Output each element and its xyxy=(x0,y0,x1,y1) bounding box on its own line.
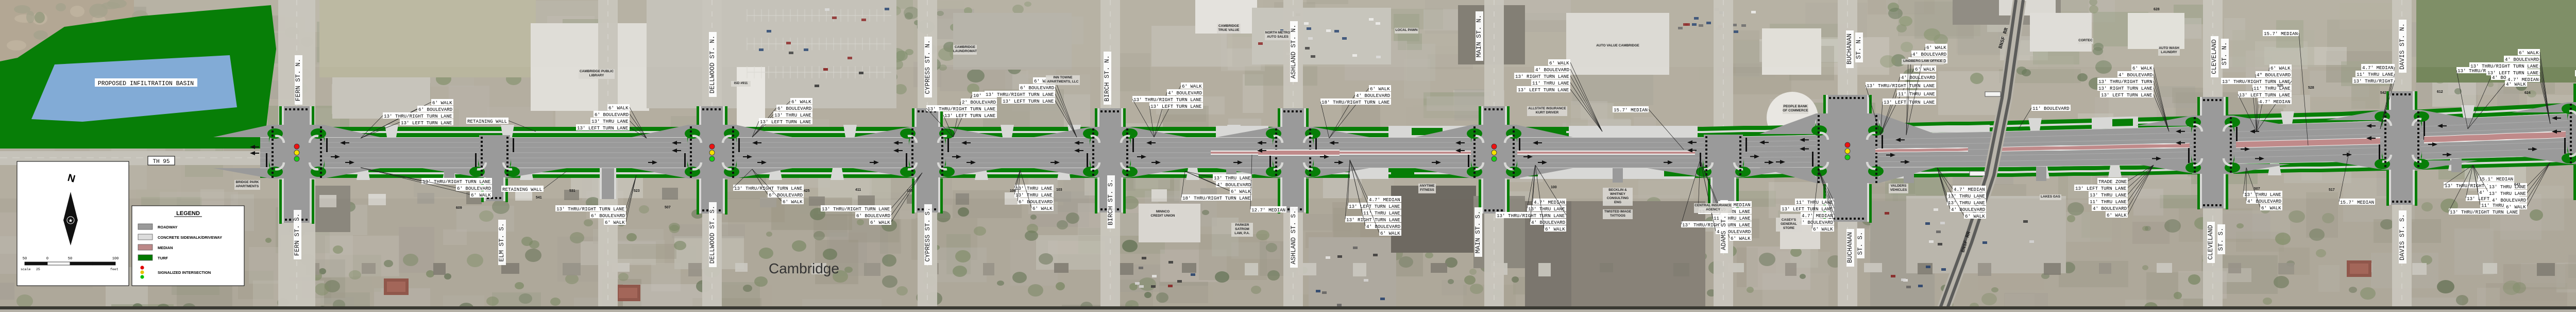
svg-text:11' THRU LANE: 11' THRU LANE xyxy=(2253,86,2291,91)
svg-text:GENERAL: GENERAL xyxy=(1781,222,1797,226)
svg-text:6' BOULEVARD: 6' BOULEVARD xyxy=(856,213,891,219)
svg-text:CLEVELAND: CLEVELAND xyxy=(2207,225,2214,260)
svg-text:13' THRU LANE: 13' THRU LANE xyxy=(1015,186,1053,191)
svg-text:STORE: STORE xyxy=(1783,226,1795,230)
svg-text:13' THRU/RIGHT TURN LANE: 13' THRU/RIGHT TURN LANE xyxy=(1133,97,1202,103)
svg-text:6' WALK: 6' WALK xyxy=(1032,206,1053,211)
svg-text:ASHLAND ST. S.: ASHLAND ST. S. xyxy=(1290,210,1297,264)
svg-text:13' THRU/RIGHT TURN: 13' THRU/RIGHT TURN xyxy=(2098,79,2153,85)
svg-text:PROPOSED INFILTRATION BASIN: PROPOSED INFILTRATION BASIN xyxy=(98,80,194,87)
svg-text:BUCHANAN: BUCHANAN xyxy=(1846,232,1854,263)
svg-text:13' LEFT TURN LANE: 13' LEFT TURN LANE xyxy=(760,119,811,125)
svg-text:INN TOWNE: INN TOWNE xyxy=(1053,76,1073,79)
svg-text:6' WALK: 6' WALK xyxy=(432,100,452,106)
svg-text:6' WALK: 6' WALK xyxy=(2132,65,2153,71)
svg-text:13' THRU LANE: 13' THRU LANE xyxy=(2489,191,2526,196)
svg-text:542: 542 xyxy=(2380,91,2386,95)
svg-text:6' WALK: 6' WALK xyxy=(1915,67,1935,72)
svg-text:6' WALK: 6' WALK xyxy=(2270,65,2291,71)
svg-text:LAKES GAS: LAKES GAS xyxy=(2041,195,2061,199)
svg-text:AUTO WASH: AUTO WASH xyxy=(2159,46,2179,50)
svg-text:ASHLAND ST. N.: ASHLAND ST. N. xyxy=(1290,24,1297,78)
svg-text:13' LEFT TURN LANE: 13' LEFT TURN LANE xyxy=(1150,104,1202,109)
svg-text:ANYTIME: ANYTIME xyxy=(1419,184,1435,188)
svg-text:13' LEFT TURN LANE: 13' LEFT TURN LANE xyxy=(1884,100,1935,105)
svg-text:4' BOULEVARD: 4' BOULEVARD xyxy=(1799,220,1834,225)
svg-text:CONCRETE SIDEWALK/DRIVEWAY: CONCRETE SIDEWALK/DRIVEWAY xyxy=(158,235,222,240)
svg-text:15.7' MEDIAN: 15.7' MEDIAN xyxy=(2264,31,2298,37)
svg-text:13' THRU/RIGHT TURN LANE: 13' THRU/RIGHT TURN LANE xyxy=(927,106,996,112)
svg-text:AUTO SALES: AUTO SALES xyxy=(1267,35,1289,39)
svg-text:11' THRU LANE: 11' THRU LANE xyxy=(2090,199,2127,205)
svg-text:CYPRESS ST. N.: CYPRESS ST. N. xyxy=(924,40,931,94)
svg-text:528: 528 xyxy=(2308,86,2314,90)
svg-text:APARTMENTS, LLC: APARTMENTS, LLC xyxy=(1047,80,1079,84)
svg-text:13' THRU/RIGHT TURN LANE: 13' THRU/RIGHT TURN LANE xyxy=(422,179,491,185)
svg-text:BIRCH ST. S.: BIRCH ST. S. xyxy=(1107,179,1114,225)
svg-text:13' THRU LANE: 13' THRU LANE xyxy=(1214,175,1251,181)
svg-text:LAW, P.A.: LAW, P.A. xyxy=(1234,232,1250,235)
svg-text:13' THRU LANE: 13' THRU LANE xyxy=(2489,184,2526,190)
svg-text:BIRCH ST. N.: BIRCH ST. N. xyxy=(1104,55,1111,102)
svg-text:13' LEFT TURN LANE: 13' LEFT TURN LANE xyxy=(401,120,452,126)
svg-text:6' BOULEVARD: 6' BOULEVARD xyxy=(1019,199,1053,205)
svg-text:6' WALK: 6' WALK xyxy=(783,199,803,205)
svg-text:11' THRU LANE: 11' THRU LANE xyxy=(1532,80,1569,86)
svg-text:SATROM: SATROM xyxy=(1235,227,1249,231)
svg-text:13' THRU/RIGHT TURN LANE: 13' THRU/RIGHT TURN LANE xyxy=(556,206,625,212)
svg-text:ISD #911: ISD #911 xyxy=(734,81,748,85)
svg-text:105: 105 xyxy=(907,189,913,193)
svg-text:13' THRU/RIGHT: 13' THRU/RIGHT xyxy=(2353,78,2394,84)
svg-text:OF COMMERCE: OF COMMERCE xyxy=(1783,109,1808,112)
svg-text:25: 25 xyxy=(36,268,40,271)
svg-text:0: 0 xyxy=(46,257,48,261)
svg-text:LIBRARY: LIBRARY xyxy=(589,74,604,77)
svg-text:6' WALK: 6' WALK xyxy=(1549,60,1569,66)
svg-text:4' BOULEVARD: 4' BOULEVARD xyxy=(2119,72,2153,78)
svg-text:100: 100 xyxy=(112,257,119,261)
svg-text:411: 411 xyxy=(855,188,861,192)
svg-text:13' THRU/RIGHT TURN LANE: 13' THRU/RIGHT TURN LANE xyxy=(986,92,1054,97)
svg-text:13' THRU LANE: 13' THRU LANE xyxy=(591,119,629,124)
svg-text:13' THRU LANE: 13' THRU LANE xyxy=(774,112,811,118)
svg-text:LOCAL PAWN: LOCAL PAWN xyxy=(1395,28,1417,32)
svg-text:feet: feet xyxy=(110,268,118,271)
svg-text:ELM ST. S.: ELM ST. S. xyxy=(498,223,505,261)
svg-text:4' BOULEVARD: 4' BOULEVARD xyxy=(1531,220,1566,225)
svg-text:13' THRU/RIGHT TURN LANE: 13' THRU/RIGHT TURN LANE xyxy=(2450,209,2518,215)
svg-text:6' WALK: 6' WALK xyxy=(1370,86,1390,92)
svg-text:TRADE ZONE: TRADE ZONE xyxy=(2098,179,2127,185)
svg-text:13' THRU LANE: 13' THRU LANE xyxy=(2090,192,2127,198)
svg-text:13' THRU LANE: 13' THRU LANE xyxy=(1528,206,1565,212)
svg-text:DAVIS ST. N.: DAVIS ST. N. xyxy=(2399,23,2406,70)
svg-text:CENTRAL INSURANCE: CENTRAL INSURANCE xyxy=(1694,204,1732,207)
svg-text:CASEY'S: CASEY'S xyxy=(1782,218,1797,222)
svg-text:100: 100 xyxy=(1551,186,1557,189)
svg-text:TH 95: TH 95 xyxy=(152,159,170,165)
svg-text:13' THRU/RIGHT TURN LANE: 13' THRU/RIGHT TURN LANE xyxy=(2470,63,2539,69)
svg-text:4.7' MEDIAN: 4.7' MEDIAN xyxy=(2362,65,2394,71)
svg-text:AUTO VALUE CAMBRIDGE: AUTO VALUE CAMBRIDGE xyxy=(1596,44,1639,47)
svg-text:13' LEFT TURN LANE: 13' LEFT TURN LANE xyxy=(2075,186,2127,191)
svg-text:6' WALK: 6' WALK xyxy=(791,99,811,105)
svg-text:6' BOULEVARD: 6' BOULEVARD xyxy=(457,186,492,191)
svg-text:531: 531 xyxy=(569,189,575,193)
svg-text:TWISTED IMAGE: TWISTED IMAGE xyxy=(1604,210,1632,214)
svg-text:13' LEFT TURN LANE: 13' LEFT TURN LANE xyxy=(2101,92,2153,98)
svg-text:RETAINING WALL: RETAINING WALL xyxy=(502,187,542,192)
svg-text:6' WALK: 6' WALK xyxy=(1231,189,1251,194)
svg-text:CLEVELAND: CLEVELAND xyxy=(2211,39,2218,74)
svg-text:SIGNALIZED INTERSECTION: SIGNALIZED INTERSECTION xyxy=(158,270,211,275)
svg-text:520: 520 xyxy=(2277,84,2283,88)
svg-text:517: 517 xyxy=(2329,188,2335,192)
svg-text:6' WALK: 6' WALK xyxy=(1380,231,1400,236)
svg-text:6' WALK: 6' WALK xyxy=(1731,236,1751,241)
svg-text:4' BOULEVARD: 4' BOULEVARD xyxy=(2505,57,2539,62)
svg-text:507: 507 xyxy=(665,206,671,209)
svg-text:106: 106 xyxy=(1010,189,1016,193)
svg-text:FERN ST. N.: FERN ST. N. xyxy=(295,59,302,102)
svg-text:ROADWAY: ROADWAY xyxy=(158,225,177,229)
svg-text:18' THRU/RIGHT TURN LANE: 18' THRU/RIGHT TURN LANE xyxy=(1182,195,1251,201)
svg-text:CAMBRIDGE: CAMBRIDGE xyxy=(955,45,976,49)
svg-text:6' WALK: 6' WALK xyxy=(1182,84,1202,89)
svg-text:4' BOULEVARD: 4' BOULEVARD xyxy=(2093,206,2127,211)
svg-text:CREDIT UNION: CREDIT UNION xyxy=(1151,214,1175,218)
svg-text:scale: scale xyxy=(21,268,31,271)
svg-text:MINNCO: MINNCO xyxy=(1156,210,1170,214)
svg-text:DELLWOOD ST. N.: DELLWOOD ST. N. xyxy=(709,36,716,94)
svg-text:609: 609 xyxy=(456,206,462,210)
svg-text:6' WALK: 6' WALK xyxy=(1965,214,1985,219)
svg-text:MAIN ST. N.: MAIN ST. N. xyxy=(1476,15,1483,58)
svg-text:CYPRESS ST. S.: CYPRESS ST. S. xyxy=(924,207,931,261)
svg-text:13' THRU/RIGHT TURN LANE: 13' THRU/RIGHT TURN LANE xyxy=(1682,222,1751,228)
svg-text:MEDIAN: MEDIAN xyxy=(158,245,173,250)
svg-text:BUCHANAN: BUCHANAN xyxy=(1846,34,1853,64)
svg-text:13' THRU LANE: 13' THRU LANE xyxy=(2244,192,2281,198)
svg-text:11' THRU LANE: 11' THRU LANE xyxy=(2357,72,2394,77)
svg-text:CORTEC: CORTEC xyxy=(2078,39,2093,42)
svg-text:FITNESS: FITNESS xyxy=(1420,188,1434,192)
svg-text:103: 103 xyxy=(1056,188,1062,192)
svg-text:6' BOULEVARD: 6' BOULEVARD xyxy=(591,213,625,219)
svg-text:TATTOOS: TATTOOS xyxy=(1610,214,1626,218)
svg-text:ST. N.: ST. N. xyxy=(2221,42,2228,65)
svg-text:6' BOULEVARD: 6' BOULEVARD xyxy=(595,112,629,118)
svg-text:4' BOULEVARD: 4' BOULEVARD xyxy=(1168,90,1202,96)
svg-text:13' THRU LANE: 13' THRU LANE xyxy=(1015,192,1053,198)
svg-text:13' THRU/RIGHT TURN LANE: 13' THRU/RIGHT TURN LANE xyxy=(384,113,452,119)
svg-text:ST. S.: ST. S. xyxy=(1857,232,1864,255)
svg-text:13' THRU LANE: 13' THRU LANE xyxy=(1948,200,1985,206)
svg-text:4' BOULEVARD: 4' BOULEVARD xyxy=(1912,52,1947,57)
svg-text:612: 612 xyxy=(2437,90,2443,94)
svg-text:BRIDGE PARK: BRIDGE PARK xyxy=(235,180,259,184)
svg-text:13' THRU/RIGHT TURN LANE: 13' THRU/RIGHT TURN LANE xyxy=(822,206,890,212)
svg-text:15.7' MEDIAN: 15.7' MEDIAN xyxy=(1614,107,1648,113)
svg-text:13' LEFT TURN LANE: 13' LEFT TURN LANE xyxy=(577,125,629,131)
svg-text:ENG: ENG xyxy=(1614,201,1621,204)
svg-text:4.7' MEDIAN: 4.7' MEDIAN xyxy=(2259,99,2291,105)
svg-text:15.1' MEDIAN: 15.1' MEDIAN xyxy=(2479,176,2513,182)
svg-text:KURT DRIVER: KURT DRIVER xyxy=(1536,111,1559,114)
svg-text:507: 507 xyxy=(2254,187,2260,191)
svg-text:VEHICLES: VEHICLES xyxy=(1890,188,1907,192)
svg-text:DAVIS ST. S.: DAVIS ST. S. xyxy=(2399,214,2406,260)
svg-text:AGENCY: AGENCY xyxy=(1706,208,1720,211)
svg-text:6' WALK: 6' WALK xyxy=(2261,205,2281,211)
svg-text:★: ★ xyxy=(69,218,73,224)
svg-text:13' RIGHT TURN LANE: 13' RIGHT TURN LANE xyxy=(1515,74,1569,79)
svg-text:6' BOULEVARD: 6' BOULEVARD xyxy=(1020,85,1055,91)
svg-text:6' WALK: 6' WALK xyxy=(2519,50,2539,56)
svg-text:541: 541 xyxy=(536,196,542,200)
svg-text:TRUE VALUE: TRUE VALUE xyxy=(1218,28,1240,32)
svg-text:2' BOULEVARD: 2' BOULEVARD xyxy=(962,100,996,105)
svg-text:6' WALK: 6' WALK xyxy=(608,105,629,111)
svg-text:ST. S.: ST. S. xyxy=(2217,227,2225,251)
svg-text:13' LEFT TURN LANE: 13' LEFT TURN LANE xyxy=(1003,98,1054,104)
svg-text:PEOPLE BANK: PEOPLE BANK xyxy=(1784,105,1808,108)
svg-text:VALDERS: VALDERS xyxy=(1891,184,1907,188)
svg-text:13' RIGHT TURN LANE: 13' RIGHT TURN LANE xyxy=(2098,86,2153,91)
svg-text:11' THRU LANE: 11' THRU LANE xyxy=(1714,216,1751,221)
svg-text:425: 425 xyxy=(804,189,810,193)
svg-text:FERN ST. S.: FERN ST. S. xyxy=(294,214,301,256)
svg-text:4.7' MEDIAN: 4.7' MEDIAN xyxy=(1369,197,1400,203)
svg-text:MAIN ST. S.: MAIN ST. S. xyxy=(1475,211,1482,254)
svg-text:624: 624 xyxy=(2524,91,2531,95)
svg-text:13' THRU LANE: 13' THRU LANE xyxy=(1948,193,1985,199)
svg-text:18' THRU/RIGHT TURN LANE: 18' THRU/RIGHT TURN LANE xyxy=(1321,100,1390,105)
svg-text:4' BOULEVARD: 4' BOULEVARD xyxy=(2247,199,2282,204)
svg-text:523: 523 xyxy=(634,189,640,193)
svg-text:15.7' MEDIAN: 15.7' MEDIAN xyxy=(2340,200,2374,205)
svg-text:TURF: TURF xyxy=(158,256,168,260)
svg-text:PARKER: PARKER xyxy=(1235,223,1249,227)
svg-text:6' WALK: 6' WALK xyxy=(471,192,491,198)
svg-text:6' BOULEVARD: 6' BOULEVARD xyxy=(777,106,812,111)
svg-text:LAUNDROMAT: LAUNDROMAT xyxy=(953,50,977,53)
svg-text:4" BOULEVARD: 4" BOULEVARD xyxy=(2257,72,2291,78)
svg-text:4.7' MEDIAN: 4.7' MEDIAN xyxy=(1534,200,1565,205)
svg-text:CONSULTING: CONSULTING xyxy=(1607,196,1629,200)
svg-text:6' WALK: 6' WALK xyxy=(2506,204,2526,210)
svg-text:6' WALK: 6' WALK xyxy=(870,220,890,225)
svg-text:50: 50 xyxy=(68,257,72,261)
svg-text:CAMBRIDGE: CAMBRIDGE xyxy=(1218,24,1240,28)
svg-text:LEGEND: LEGEND xyxy=(176,210,200,217)
svg-text:4' BOULEVARD: 4' BOULEVARD xyxy=(1535,67,1570,73)
svg-text:LINDBERG LAW OFFICE: LINDBERG LAW OFFICE xyxy=(1903,59,1942,63)
svg-text:13' LEFT TURN LANE: 13' LEFT TURN LANE xyxy=(2239,92,2291,98)
svg-text:13' THRU/RIGHT TURN LANE: 13' THRU/RIGHT TURN LANE xyxy=(1867,83,1935,89)
svg-text:4.7' MEDIAN: 4.7' MEDIAN xyxy=(1954,187,1985,192)
svg-text:WHITNEY: WHITNEY xyxy=(1610,192,1626,196)
svg-text:6' WALK: 6' WALK xyxy=(605,220,625,225)
svg-text:RETAINING WALL: RETAINING WALL xyxy=(467,119,507,124)
svg-text:6' WALK: 6' WALK xyxy=(1813,226,1833,232)
svg-text:4' BOULEVARD: 4' BOULEVARD xyxy=(1217,182,1251,188)
svg-text:6' WALK: 6' WALK xyxy=(2107,212,2127,218)
svg-text:13' LEFT TURN LANE: 13' LEFT TURN LANE xyxy=(1782,206,1833,212)
svg-text:DELLWOOD ST. S.: DELLWOOD ST. S. xyxy=(709,206,716,264)
svg-text:LAUNDRY: LAUNDRY xyxy=(2161,51,2177,54)
svg-text:BECKLIN &: BECKLIN & xyxy=(1608,188,1627,192)
svg-text:4.7' MEDIAN: 4.7' MEDIAN xyxy=(1802,213,1833,219)
svg-text:Cambridge: Cambridge xyxy=(769,260,839,276)
svg-text:4' BOULEVARD: 4' BOULEVARD xyxy=(2492,198,2527,203)
svg-text:11' BOULEVARD: 11' BOULEVARD xyxy=(2032,106,2070,111)
svg-text:ALLSTATE INSURANCE: ALLSTATE INSURANCE xyxy=(1528,107,1566,110)
svg-text:4' BOULEVARD: 4' BOULEVARD xyxy=(1356,93,1391,98)
svg-text:11' THRU LANE: 11' THRU LANE xyxy=(1898,91,1935,97)
svg-text:12.7' MEDIAN: 12.7' MEDIAN xyxy=(1251,207,1285,213)
svg-text:6' WALK: 6' WALK xyxy=(1545,226,1565,232)
svg-text:6' WALK: 6' WALK xyxy=(1926,45,1946,51)
svg-text:6' BOULEVARD: 6' BOULEVARD xyxy=(418,107,453,112)
svg-text:13' LEFT TURN LANE: 13' LEFT TURN LANE xyxy=(1349,204,1400,209)
svg-text:APARTMENTS: APARTMENTS xyxy=(236,185,259,188)
svg-text:643: 643 xyxy=(2514,183,2520,187)
svg-text:ST. N.: ST. N. xyxy=(1855,36,1862,59)
svg-text:4.7' MEDIAN: 4.7' MEDIAN xyxy=(2507,77,2539,83)
svg-text:11' THRU LANE: 11' THRU LANE xyxy=(1363,210,1400,216)
svg-text:13' LEFT TURN LANE: 13' LEFT TURN LANE xyxy=(1518,87,1569,93)
svg-text:6' BOULEVARD: 6' BOULEVARD xyxy=(769,192,803,198)
svg-text:13' LEFT TURN LANE: 13' LEFT TURN LANE xyxy=(2487,70,2539,76)
svg-text:CAMBRIDGE PUBLIC: CAMBRIDGE PUBLIC xyxy=(580,70,614,73)
svg-text:NORTH METRO: NORTH METRO xyxy=(1265,31,1290,35)
svg-text:4' BOULEVARD: 4' BOULEVARD xyxy=(1951,207,1986,212)
svg-text:4' BOULEVARD: 4' BOULEVARD xyxy=(1366,224,1401,229)
svg-text:50: 50 xyxy=(23,257,27,261)
svg-text:628: 628 xyxy=(2154,8,2160,11)
svg-text:13' LEFT TURN LANE: 13' LEFT TURN LANE xyxy=(944,113,996,119)
